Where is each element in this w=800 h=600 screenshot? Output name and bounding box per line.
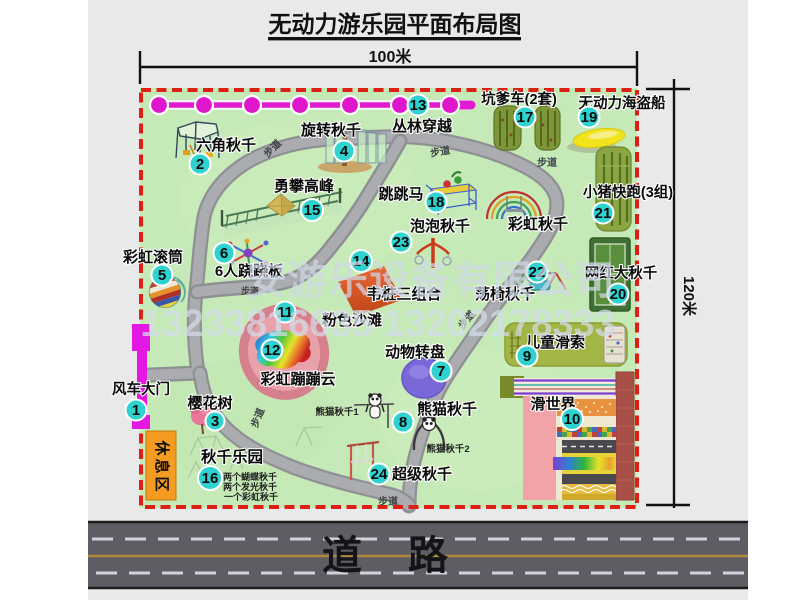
- svg-text:彩虹秋千: 彩虹秋千: [507, 215, 568, 233]
- svg-text:无动力游乐园平面布局图: 无动力游乐园平面布局图: [269, 11, 522, 37]
- svg-text:23: 23: [393, 234, 410, 251]
- svg-text:8: 8: [399, 414, 407, 431]
- svg-text:24: 24: [371, 466, 388, 483]
- svg-text:6: 6: [220, 245, 228, 262]
- svg-text:4: 4: [340, 143, 349, 160]
- svg-text:两个蝴蝶秋千: 两个蝴蝶秋千: [223, 471, 277, 482]
- svg-text:21: 21: [595, 205, 612, 222]
- svg-text:19: 19: [581, 109, 598, 126]
- svg-text:丛林穿越: 丛林穿越: [392, 117, 453, 135]
- svg-text:120米: 120米: [680, 276, 698, 317]
- svg-text:息: 息: [153, 458, 171, 473]
- svg-text:秋千乐园: 秋千乐园: [201, 447, 263, 466]
- svg-text:旋转秋千: 旋转秋千: [300, 121, 361, 139]
- svg-text:安游乐设备有限公司: 安游乐设备有限公司: [247, 259, 616, 303]
- svg-text:跳跳马: 跳跳马: [378, 185, 423, 203]
- svg-text:风车大门: 风车大门: [112, 380, 170, 398]
- svg-text:17: 17: [517, 109, 534, 126]
- svg-text:休: 休: [153, 439, 171, 456]
- svg-text:9: 9: [523, 348, 531, 365]
- svg-text:熊猫秋千: 熊猫秋千: [417, 400, 477, 418]
- svg-text:勇攀高峰: 勇攀高峰: [274, 177, 335, 195]
- svg-text:熊猫秋千2: 熊猫秋千2: [426, 443, 469, 455]
- svg-text:13233816635 13202178333: 13233816635 13202178333: [140, 303, 616, 345]
- svg-text:5: 5: [158, 267, 166, 284]
- svg-text:区: 区: [153, 476, 170, 491]
- svg-text:樱花树: 樱花树: [187, 394, 232, 412]
- svg-text:10: 10: [564, 411, 581, 428]
- svg-text:7: 7: [437, 363, 445, 380]
- svg-text:步道: 步道: [537, 156, 557, 169]
- svg-text:动物转盘: 动物转盘: [385, 343, 445, 361]
- svg-text:100米: 100米: [369, 47, 413, 66]
- svg-text:小猪快跑(3组): 小猪快跑(3组): [583, 183, 673, 201]
- svg-text:彩虹蹦蹦云: 彩虹蹦蹦云: [259, 370, 335, 388]
- svg-text:18: 18: [428, 194, 445, 211]
- svg-text:1: 1: [132, 402, 140, 419]
- svg-text:泡泡秋千: 泡泡秋千: [410, 217, 470, 235]
- svg-text:道: 道: [322, 534, 362, 578]
- svg-text:2: 2: [196, 156, 204, 173]
- svg-text:13: 13: [410, 97, 427, 114]
- svg-text:3: 3: [211, 413, 219, 430]
- svg-text:超级秋千: 超级秋千: [391, 465, 452, 483]
- svg-text:15: 15: [304, 202, 321, 219]
- svg-text:六角秋千: 六角秋千: [196, 136, 256, 154]
- svg-text:熊猫秋千1: 熊猫秋千1: [315, 406, 359, 418]
- svg-text:路: 路: [408, 534, 449, 578]
- svg-text:16: 16: [202, 470, 219, 487]
- svg-text:一个彩虹秋千: 一个彩虹秋千: [224, 491, 278, 502]
- svg-text:两个发光秋千: 两个发光秋千: [223, 481, 277, 492]
- svg-text:坑爹车(2套): 坑爹车(2套): [481, 90, 557, 108]
- svg-text:彩虹滚筒: 彩虹滚筒: [122, 248, 183, 266]
